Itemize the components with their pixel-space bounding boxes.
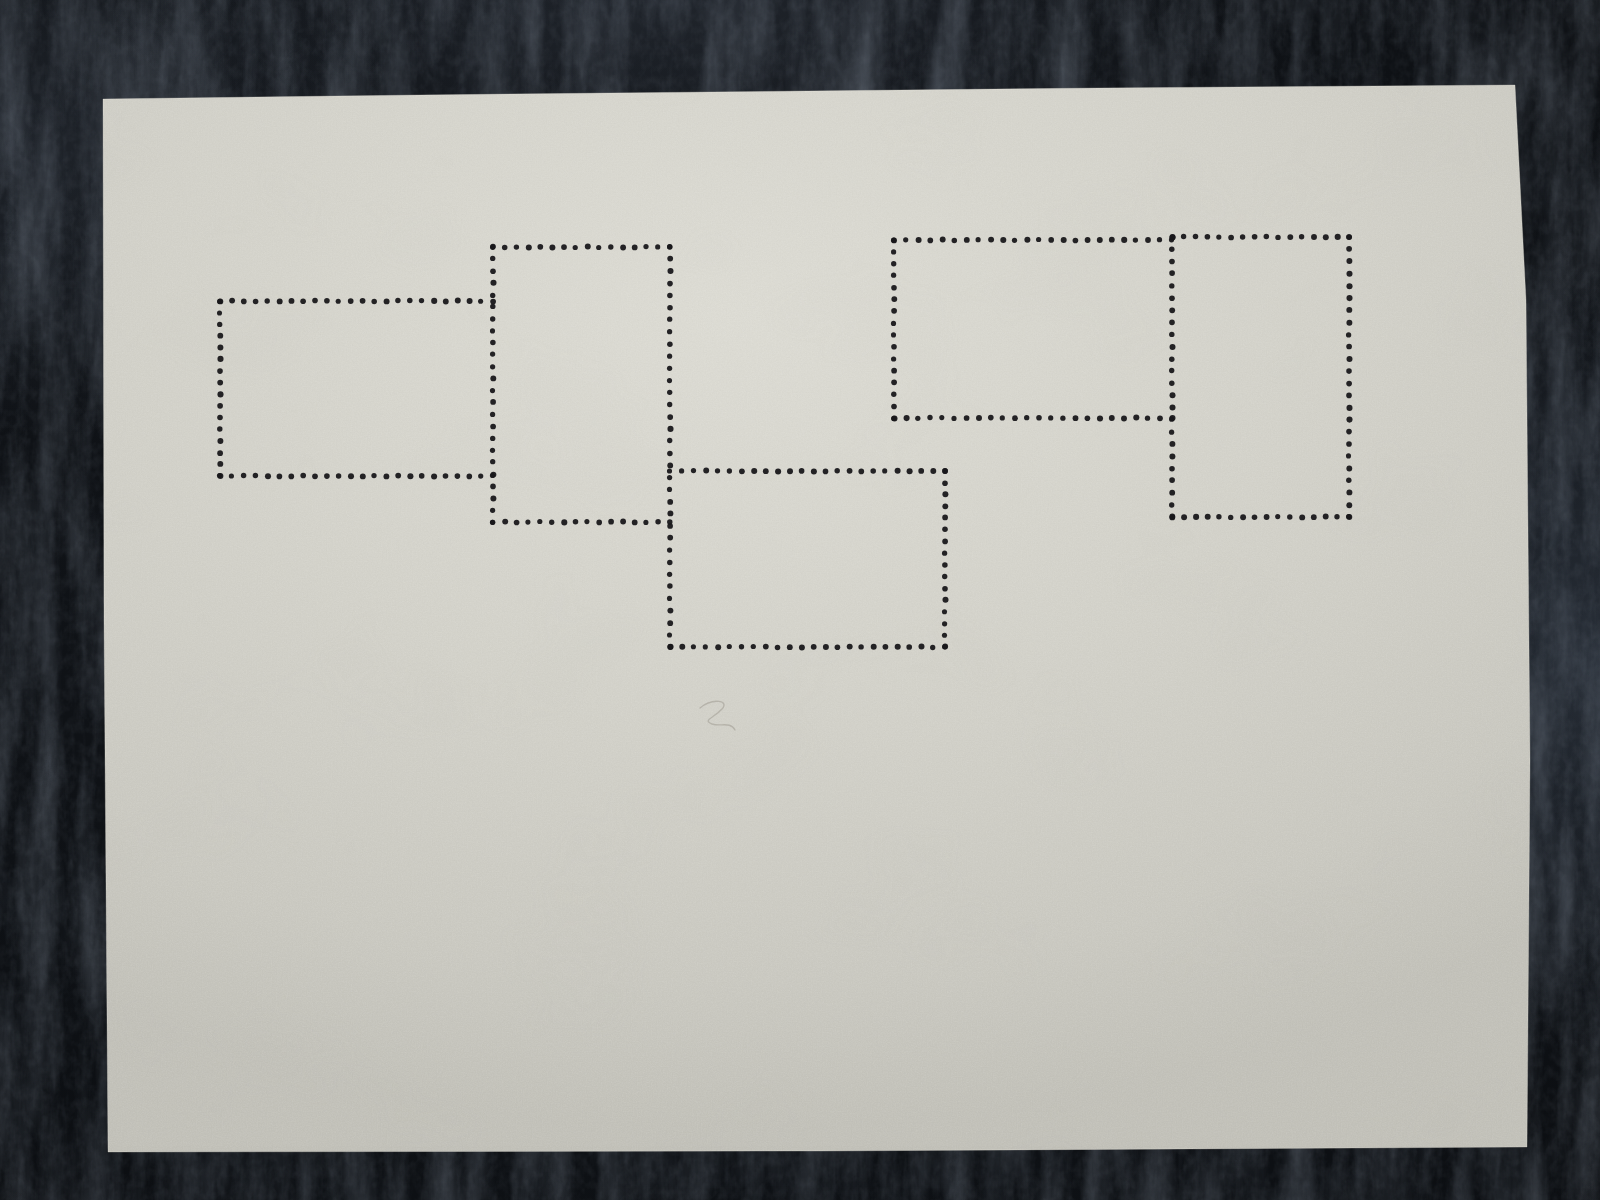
paper-grain-dark-layer bbox=[0, 0, 1600, 1200]
paper-grain-light-layer bbox=[0, 0, 1600, 1200]
paper-sheet bbox=[0, 0, 1600, 1200]
paper-texture bbox=[0, 0, 1600, 1200]
photo-scene bbox=[0, 0, 1600, 1200]
paper-mottle-layer bbox=[0, 0, 1600, 1200]
